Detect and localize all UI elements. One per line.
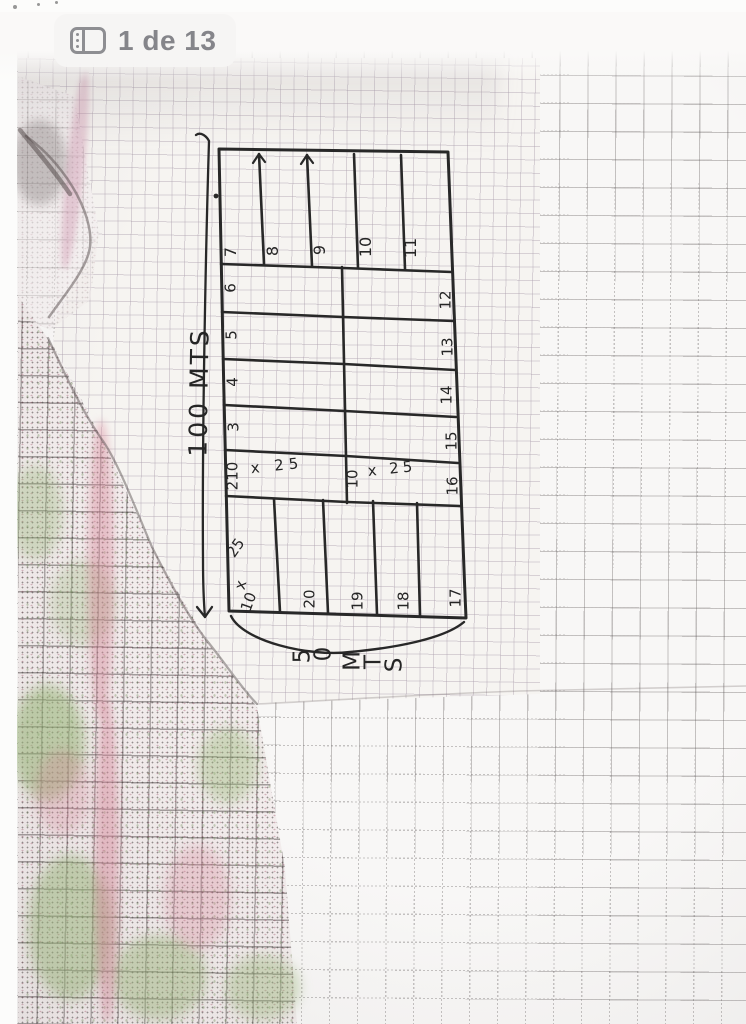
green-stain (225, 955, 300, 1020)
lot-17-label: 17 (449, 588, 464, 607)
lot-14-label: 14 (440, 385, 455, 404)
lot-8-label: 8 (265, 246, 281, 256)
dimension-50mts-char: S (384, 658, 407, 673)
lot-5-label: 5 (225, 330, 240, 340)
lot-7-label: 7 (223, 247, 239, 257)
icon-dot (76, 39, 79, 42)
pink-stain (35, 750, 90, 835)
lot-19-label: 19 (351, 591, 366, 610)
lot-11-label: 11 (403, 238, 419, 258)
lot-2-label: 210 (226, 462, 241, 491)
pink-stain-streak (88, 420, 114, 720)
lot-6-label: 6 (224, 283, 239, 293)
dimension-100mts-label: 100 MTS (185, 327, 212, 457)
lot-18-label: 18 (397, 591, 412, 610)
page-indicator-label: 1 de 13 (118, 25, 216, 57)
lot-3-label: 3 (227, 422, 242, 432)
thumbnails-sidebar-icon (70, 27, 106, 54)
dust-speck (55, 1, 58, 4)
lot-13-label: 13 (441, 337, 456, 356)
pink-stain-streak (95, 700, 119, 1024)
lot-9-label: 9 (312, 245, 328, 255)
middle-lot-width: 10 (346, 469, 361, 488)
document-viewer-page: 7 8 9 10 11 6 5 4 3 210 x 25 10 x 25 12 … (0, 0, 746, 1024)
dimension-50mts-char: 0 (313, 647, 336, 662)
icon-dot (76, 45, 79, 48)
page-indicator-badge[interactable]: 1 de 13 (54, 14, 236, 67)
scan-margin-top (0, 0, 746, 12)
dust-speck (13, 5, 17, 9)
lot-20-label: 20 (303, 589, 318, 608)
icon-dot (76, 33, 79, 36)
pink-stain (165, 845, 230, 950)
icon-divider (82, 30, 85, 51)
lot-4-label: 4 (226, 377, 241, 387)
lot-16-label: 16 (446, 476, 461, 495)
lot-15-label: 15 (445, 431, 460, 450)
dust-speck (37, 3, 40, 6)
lot-10-label: 10 (358, 237, 374, 257)
scan-margin-left (0, 0, 17, 1024)
lot-12-label: 12 (439, 290, 454, 309)
green-stain (198, 728, 258, 803)
